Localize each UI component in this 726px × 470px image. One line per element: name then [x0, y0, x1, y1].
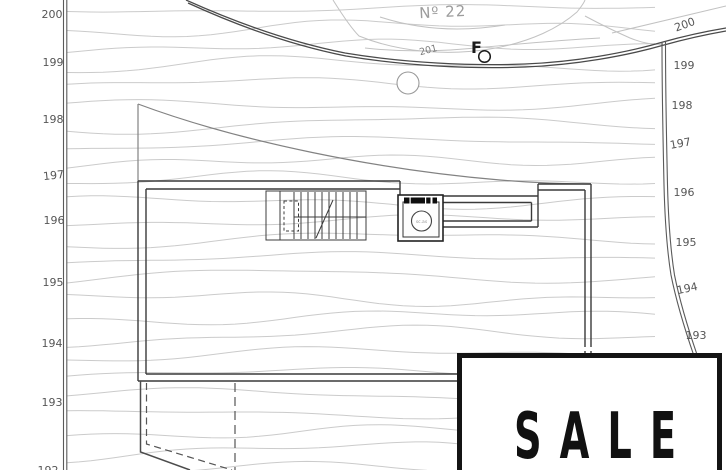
- level-label-left: 196: [44, 214, 65, 227]
- level-label-right: 198: [672, 99, 693, 112]
- contour-line: [612, 6, 726, 33]
- elevation-labels-left: 200 199 198 197 196 195 194 193 192: [38, 8, 65, 470]
- contour-line: [67, 20, 655, 37]
- level-label-right: 196: [674, 186, 695, 199]
- sale-banner: SALE: [457, 353, 722, 470]
- contour-line: [67, 171, 655, 184]
- contour-line: [67, 311, 655, 325]
- contour-line: [67, 292, 655, 307]
- level-label-right: 194: [676, 280, 699, 297]
- site-plan-drawing: sc.as F Nº 22 201 200 199 198 197 196 19…: [0, 0, 726, 470]
- contour-line: [67, 39, 655, 52]
- contour-line: [67, 98, 655, 110]
- road-level-label: 201: [418, 43, 438, 58]
- sale-banner-label: SALE: [514, 405, 694, 470]
- benchmark-symbol: F: [471, 38, 490, 62]
- left-boundary: [64, 0, 67, 470]
- contour-line: [67, 215, 655, 226]
- slope-line: [138, 104, 591, 184]
- contour-line: [67, 117, 655, 134]
- neighbor-plot-label: Nº 22: [419, 2, 467, 22]
- level-label-left: 195: [43, 276, 64, 289]
- contour-line: [67, 5, 655, 13]
- building-walls: [138, 181, 591, 381]
- level-label-left: 193: [42, 396, 63, 409]
- contour-line: [67, 325, 655, 347]
- level-label-left: 200: [42, 8, 63, 21]
- tree-symbol: [397, 72, 419, 94]
- contour-line: [67, 233, 655, 248]
- level-label-left: 194: [42, 337, 63, 350]
- elevator-cab-label: sc.as: [416, 220, 428, 225]
- lower-level-outline: [141, 381, 236, 470]
- level-label-right: 199: [674, 59, 695, 72]
- level-label-left: 192: [38, 464, 59, 470]
- stair-direction-line: [316, 200, 333, 238]
- contour-line: [67, 270, 655, 283]
- contour-line: [67, 137, 655, 149]
- right-boundary: [662, 42, 698, 356]
- contour-line: [67, 252, 655, 263]
- level-label-right: 193: [686, 329, 707, 342]
- contour-line: [67, 78, 655, 89]
- contour-line: [67, 196, 655, 210]
- level-label-right: 197: [669, 135, 692, 151]
- elevator: sc.as: [398, 195, 443, 241]
- level-label-right: 195: [676, 236, 697, 249]
- level-label-left: 199: [43, 56, 64, 69]
- level-label-left: 198: [43, 113, 64, 126]
- level-label-left: 197: [43, 168, 65, 183]
